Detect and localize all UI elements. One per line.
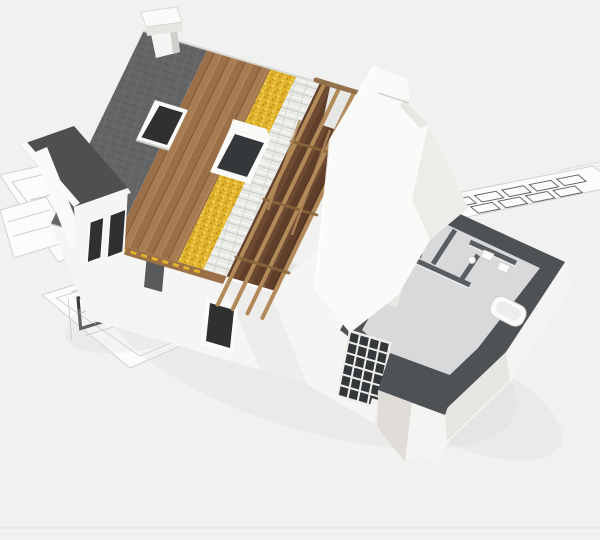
architectural-render — [0, 0, 600, 540]
front-window-glass — [206, 303, 234, 348]
wing-window-1 — [87, 217, 104, 263]
wing-window-2 — [107, 209, 126, 258]
